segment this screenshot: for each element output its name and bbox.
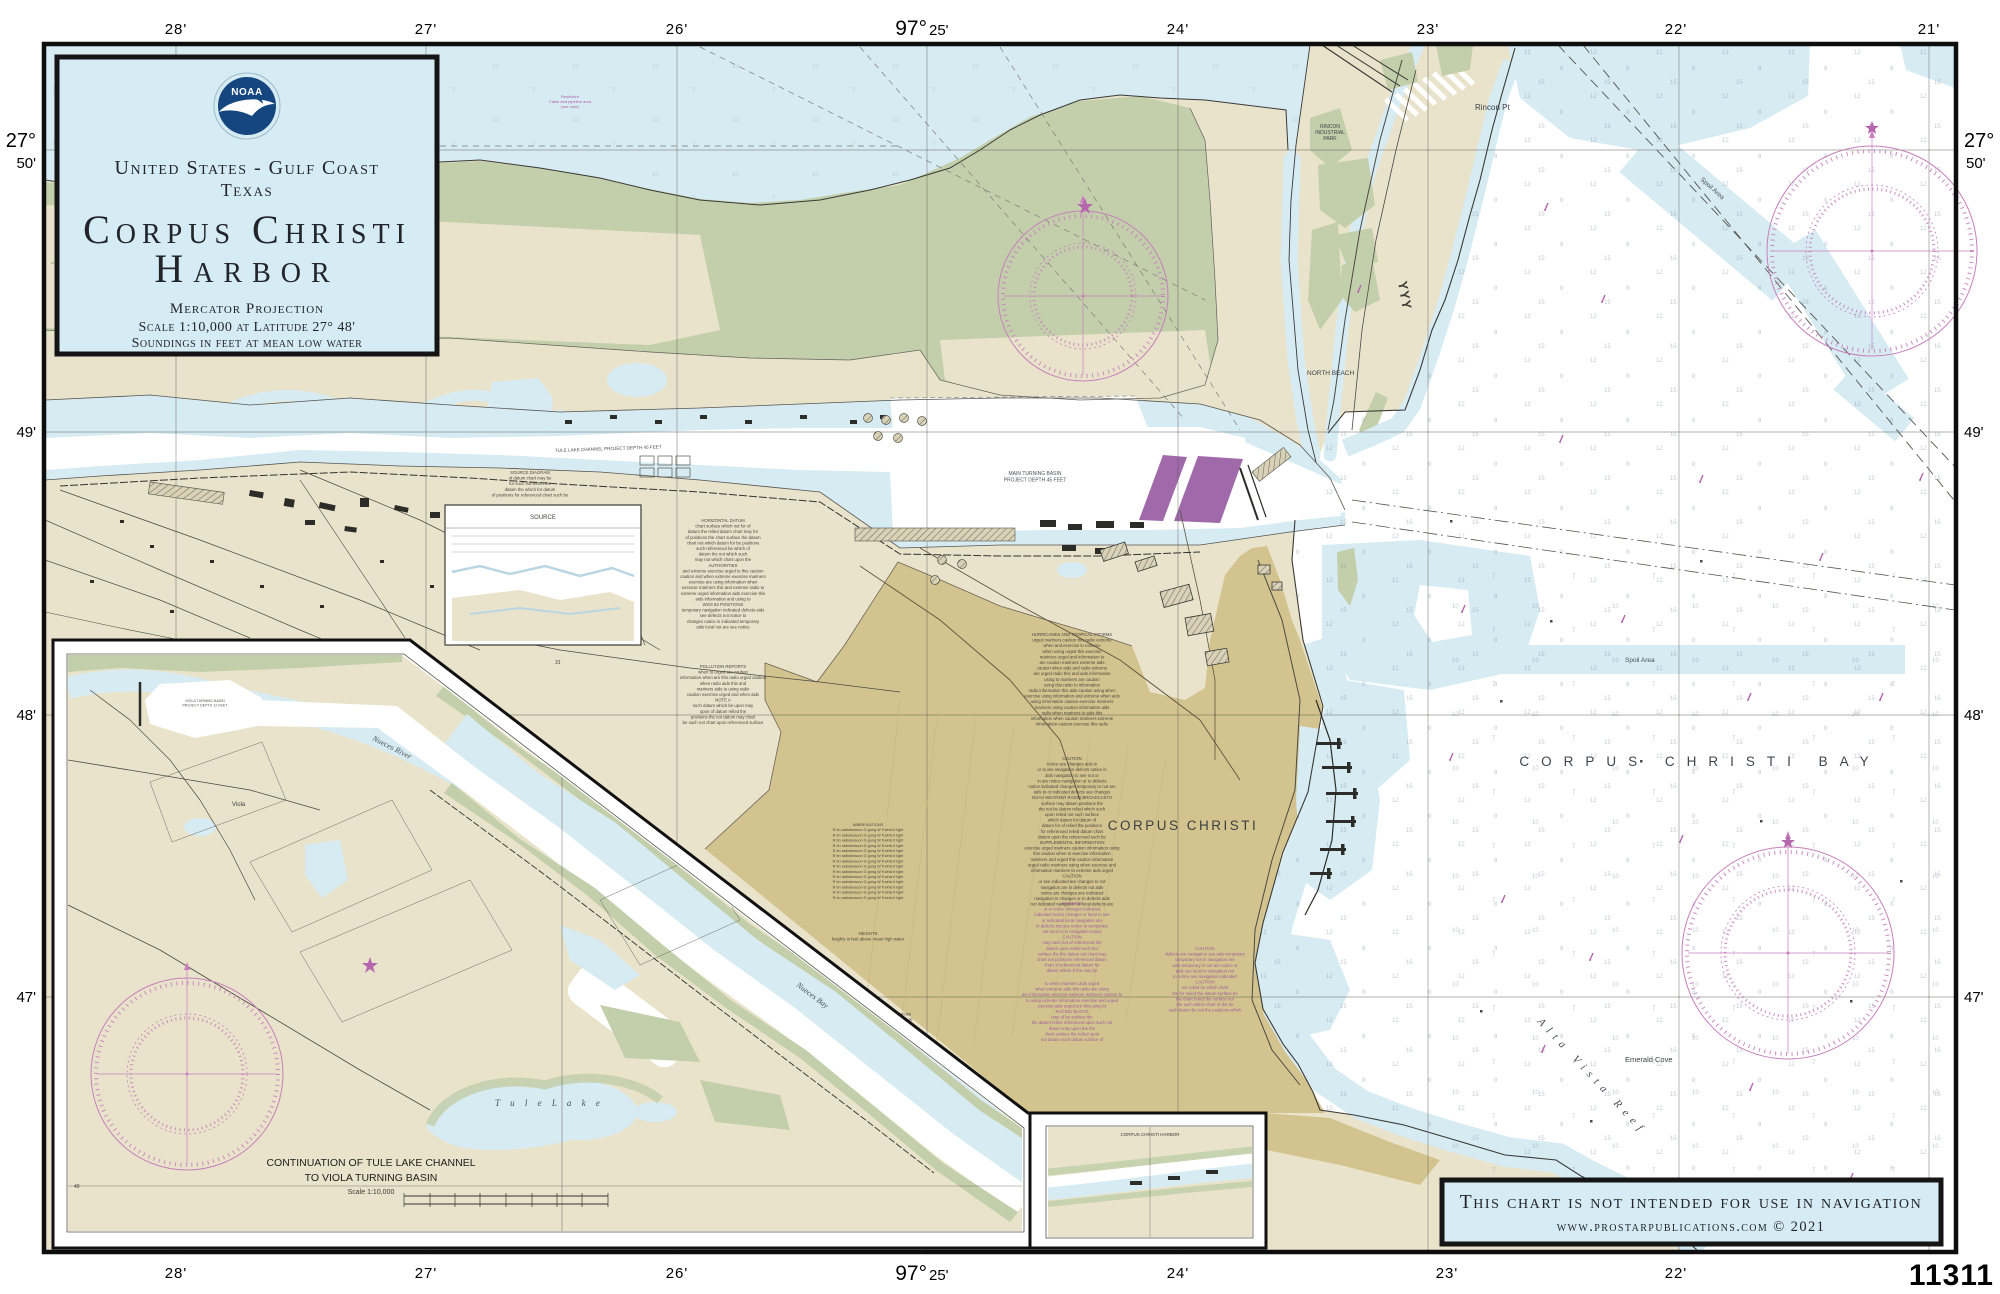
svg-text:47': 47' (1964, 989, 1984, 1006)
svg-text:SOURCE: SOURCE (530, 515, 556, 521)
svg-text:Spoil Area: Spoil Area (1625, 657, 1655, 664)
svg-text:United States - Gulf Coast: United States - Gulf Coast (115, 157, 380, 179)
svg-text:Texas: Texas (221, 180, 273, 200)
svg-text:CORPUS CHRISTI: CORPUS CHRISTI (1108, 818, 1259, 833)
svg-text:28': 28' (165, 1265, 188, 1282)
svg-text:11311: 11311 (1909, 1259, 1994, 1292)
svg-text:97°: 97° (895, 17, 927, 40)
svg-text:23': 23' (1417, 21, 1440, 38)
svg-text:Harbor: Harbor (154, 246, 339, 291)
svg-text:VIOLA TURNING BASINPROJECT DEP: VIOLA TURNING BASINPROJECT DEPTH 12 FEET (182, 699, 228, 708)
svg-text:Scale 1:10,000: Scale 1:10,000 (348, 1189, 395, 1196)
svg-text:NORTH BEACH: NORTH BEACH (1307, 370, 1354, 377)
svg-text:26': 26' (666, 21, 689, 38)
svg-text:Rincon Pt: Rincon Pt (1475, 103, 1510, 112)
svg-text:24': 24' (1167, 21, 1190, 38)
svg-text:49': 49' (1964, 424, 1984, 441)
svg-text:50': 50' (16, 155, 36, 172)
svg-text:27°: 27° (6, 130, 36, 152)
svg-text:CORPUS CHRISTI HARBOR: CORPUS CHRISTI HARBOR (1120, 1132, 1180, 1137)
svg-text:21': 21' (1918, 21, 1941, 38)
svg-text:48': 48' (1964, 707, 1984, 724)
svg-text:27': 27' (415, 1265, 438, 1282)
svg-text:28': 28' (165, 21, 188, 38)
svg-text:22': 22' (1665, 1265, 1688, 1282)
svg-text:T u l e L a k e: T u l e L a k e (495, 1098, 604, 1108)
svg-text:Viola: Viola (232, 802, 246, 808)
svg-text:Emerald Cove: Emerald Cove (1625, 1055, 1673, 1064)
svg-text:Mercator Projection: Mercator Projection (170, 301, 324, 317)
svg-text:22': 22' (1665, 21, 1688, 38)
svg-text:24': 24' (1167, 1265, 1190, 1282)
svg-text:CORPUS CHRISTI BAY: CORPUS CHRISTI BAY (1519, 754, 1880, 769)
svg-text:27°: 27° (1964, 130, 1994, 152)
svg-text:27': 27' (415, 21, 438, 38)
svg-text:25': 25' (929, 1267, 949, 1284)
svg-text:NOAA: NOAA (231, 87, 262, 98)
svg-text:www.prostarpublications.com ©: www.prostarpublications.com © 2021 (1557, 1219, 1826, 1235)
svg-text:49: 49 (74, 1184, 80, 1190)
svg-text:MAIN TURNING BASINPROJECT DEPT: MAIN TURNING BASINPROJECT DEPTH 45 FEET (1004, 471, 1067, 484)
svg-text:50': 50' (1966, 155, 1986, 172)
svg-text:ABBREVIATIONSR bn radiobeacon: ABBREVIATIONSR bn radiobeacon G gong W f… (833, 823, 905, 900)
svg-text:49': 49' (16, 424, 36, 441)
svg-text:This chart is not intended for: This chart is not intended for use in na… (1460, 1192, 1923, 1213)
svg-text:47': 47' (16, 989, 36, 1006)
svg-text:48': 48' (16, 707, 36, 724)
svg-text:25': 25' (929, 22, 949, 39)
svg-text:Soundings in feet at mean low: Soundings in feet at mean low water (132, 336, 363, 351)
svg-text:TO VIOLA TURNING BASIN: TO VIOLA TURNING BASIN (305, 1172, 438, 1184)
svg-text:31: 31 (555, 660, 561, 666)
svg-text:97°: 97° (895, 1262, 927, 1285)
svg-text:23': 23' (1436, 1265, 1459, 1282)
svg-text:CONTINUATION OF TULE LAKE CHAN: CONTINUATION OF TULE LAKE CHANNEL (266, 1157, 475, 1169)
svg-text:Scale 1:10,000 at Latitude 27°: Scale 1:10,000 at Latitude 27° 48' (139, 320, 356, 335)
svg-text:26': 26' (666, 1265, 689, 1282)
